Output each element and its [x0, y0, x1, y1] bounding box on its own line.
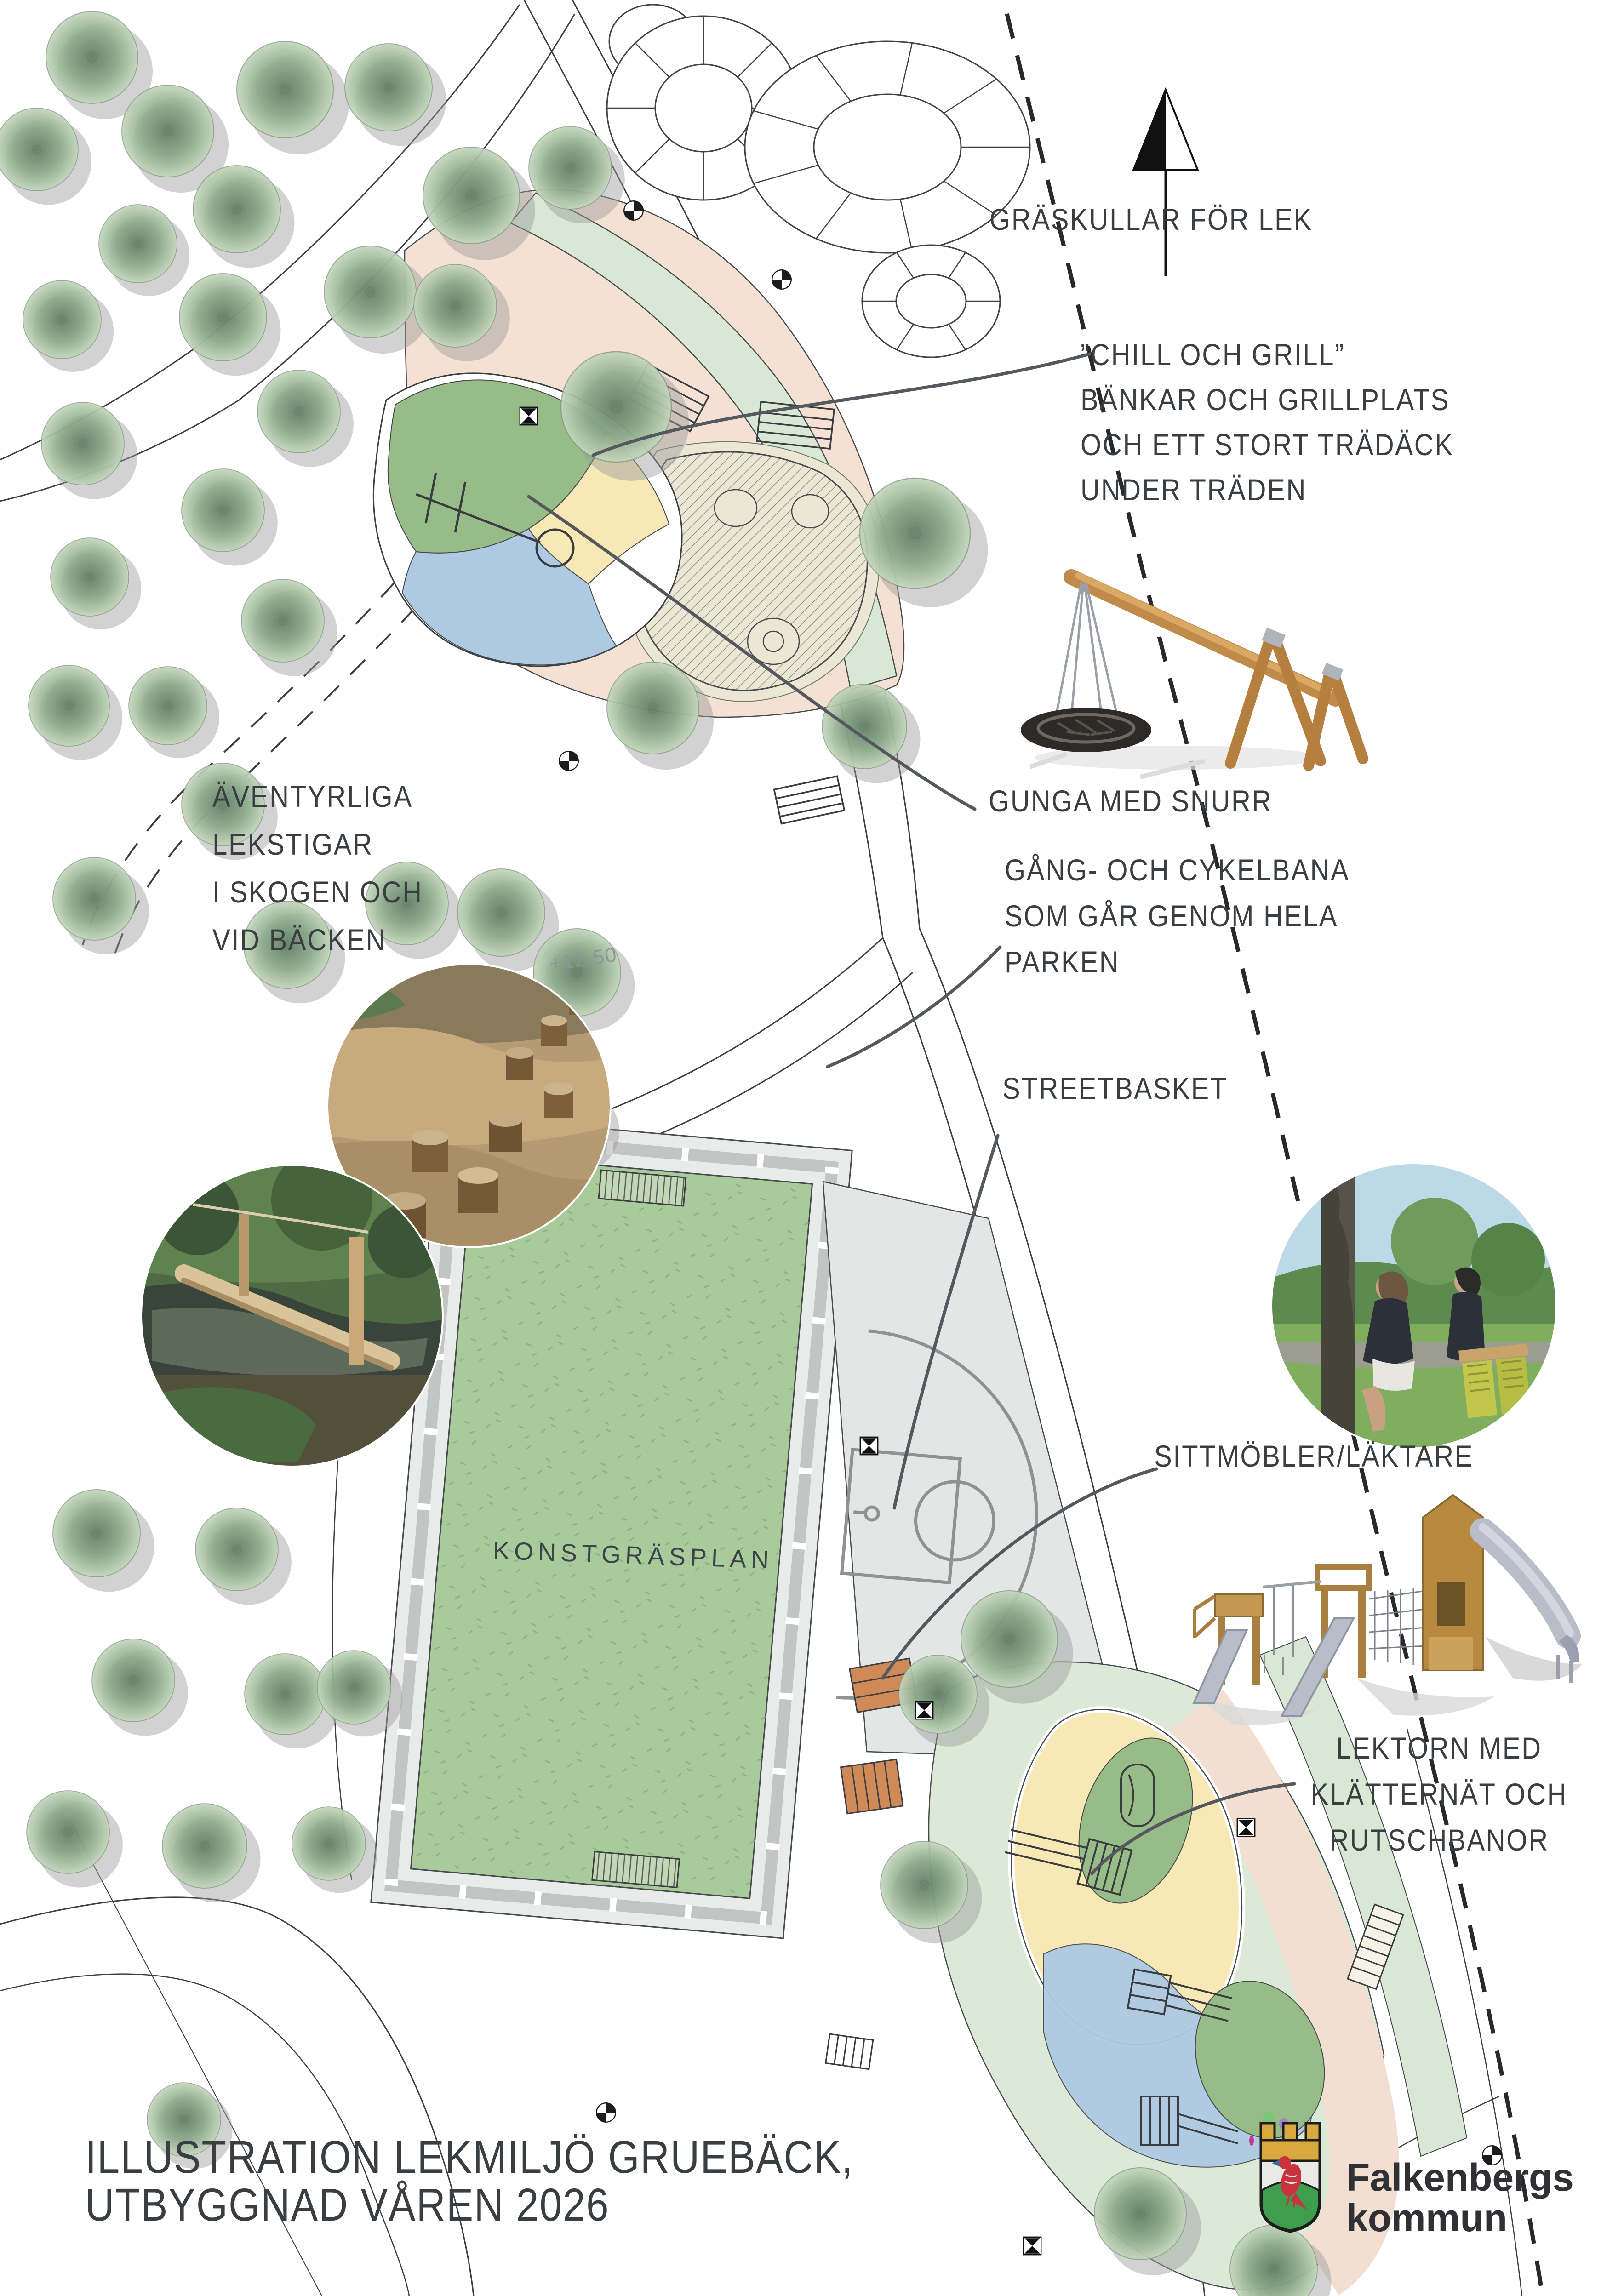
label-gang-cykelbana: GÅNG- OCH CYKELBANA SOM GÅR GENOM HELA P… — [1005, 847, 1397, 985]
label-chill-och-grill: ”CHILL OCH GRILL” BÄNKAR OCH GRILLPLATS … — [1081, 332, 1504, 512]
municipality-logo-text: Falkenbergs kommun — [1346, 2157, 1574, 2238]
label-gunga-med-snurr: GUNGA MED SNURR — [989, 778, 1311, 823]
photo-bench-people — [1271, 1163, 1556, 1448]
render-basket-swing — [1021, 576, 1363, 777]
north-arrow-icon — [1133, 90, 1198, 276]
label-lektorn: LEKTORN MED KLÄTTERNÄT OCH RUTSCHBANOR — [1287, 1725, 1591, 1863]
render-play-towers — [1194, 1495, 1582, 1725]
label-sittmobler: SITTMÖBLER/LÄKTARE — [1154, 1434, 1517, 1479]
label-aventyrliga-lekstigar: ÄVENTYRLIGA LEKSTIGAR I SKOGEN OCH VID B… — [212, 772, 452, 964]
plan-title: ILLUSTRATION LEKMILJÖ GRUEBÄCK, UTBYGGNA… — [85, 2133, 958, 2229]
label-graskullar: GRÄSKULLAR FÖR LEK — [989, 197, 1357, 242]
stairs-symbol — [826, 2034, 873, 2069]
label-streetbasket: STREETBASKET — [1002, 1066, 1258, 1111]
illustration-plan-page: GRÄSKULLAR FÖR LEK ”CHILL OCH GRILL” BÄN… — [0, 0, 1624, 2296]
